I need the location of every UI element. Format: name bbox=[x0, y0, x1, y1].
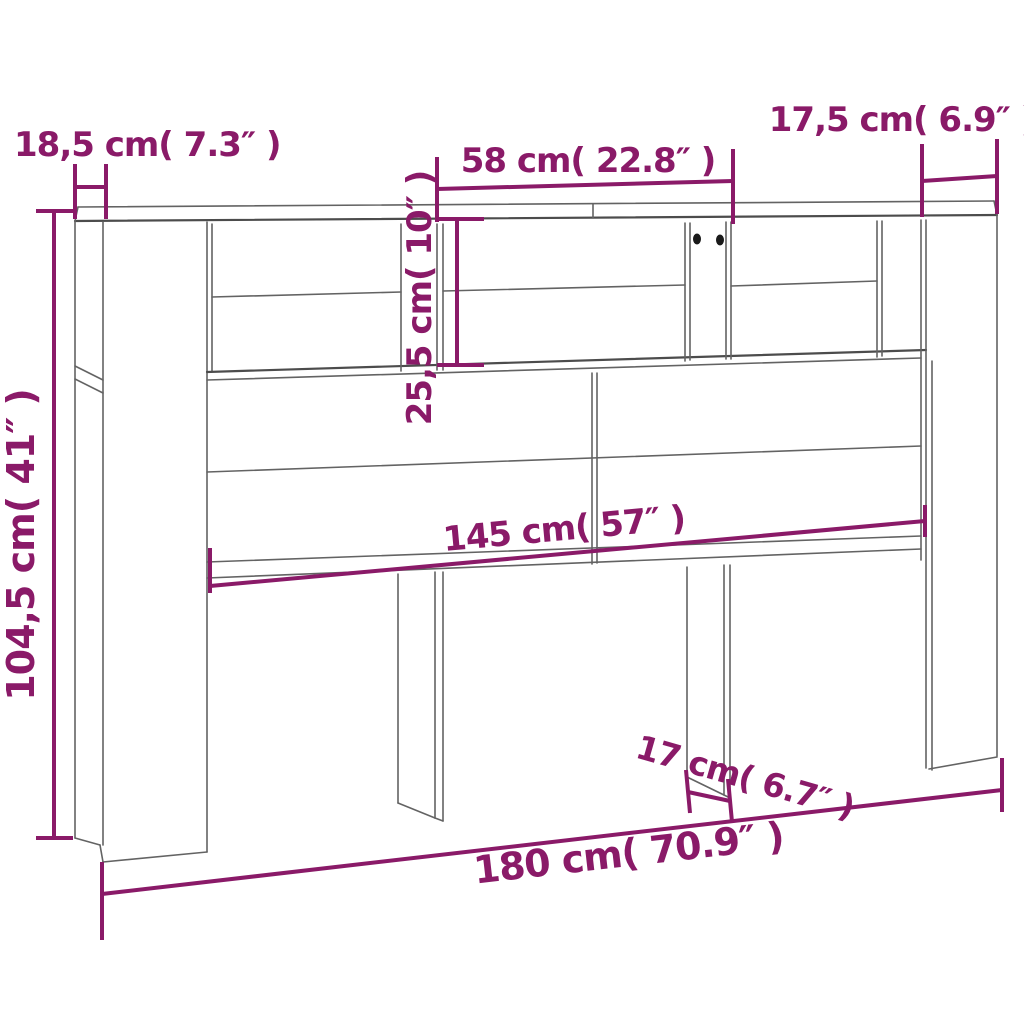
dim-label-top-left-depth: 18,5 cm( 7.3″ ) bbox=[14, 125, 280, 165]
dim-top-left-depth: 18,5 cm( 7.3″ ) bbox=[14, 125, 280, 219]
top-board bbox=[75, 201, 997, 221]
dim-label-side-height: 104,5 cm( 41″ ) bbox=[0, 389, 43, 701]
dim-label-top-right-depth: 17,5 cm( 6.9″ ) bbox=[769, 100, 1024, 140]
screw-hole-icon bbox=[716, 235, 724, 246]
dim-shelf-opening-height: 25,5 cm( 10″ ) bbox=[400, 171, 484, 426]
furniture-dimension-diagram: 18,5 cm( 7.3″ ) 58 cm( 22.8″ ) 17,5 cm( … bbox=[0, 0, 1024, 1024]
screw-hole-icon bbox=[693, 234, 701, 245]
shelf-divider-middle bbox=[685, 222, 731, 361]
screw-holes bbox=[693, 234, 724, 246]
dim-inner-width: 145 cm( 57″ ) bbox=[210, 498, 925, 593]
dim-label-shelf-opening-width: 58 cm( 22.8″ ) bbox=[461, 141, 716, 181]
dim-label-inner-width: 145 cm( 57″ ) bbox=[441, 498, 686, 560]
left-middle-leg bbox=[398, 572, 443, 821]
dim-label-shelf-opening-height: 25,5 cm( 10″ ) bbox=[400, 171, 440, 426]
dim-top-right-depth: 17,5 cm( 6.9″ ) bbox=[769, 100, 1024, 217]
dim-shelf-opening-width: 58 cm( 22.8″ ) bbox=[437, 141, 733, 224]
dim-overall-width: 180 cm( 70.9″ ) bbox=[102, 758, 1002, 940]
dim-side-height: 104,5 cm( 41″ ) bbox=[0, 211, 73, 838]
upper-shelf-row bbox=[207, 281, 926, 380]
shelf-divider-right bbox=[877, 221, 882, 357]
headboard-diagram-canvas: 18,5 cm( 7.3″ ) 58 cm( 22.8″ ) 17,5 cm( … bbox=[0, 0, 1024, 1024]
left-side-panel bbox=[75, 221, 212, 862]
right-side-panel bbox=[921, 215, 997, 770]
dim-label-overall-width: 180 cm( 70.9″ ) bbox=[471, 814, 786, 893]
